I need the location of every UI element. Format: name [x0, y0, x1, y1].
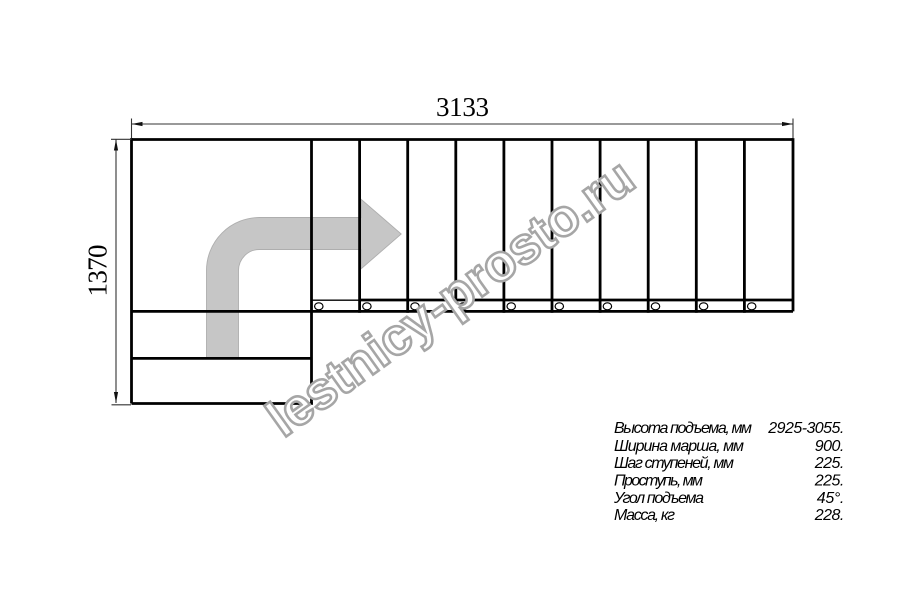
- svg-text:228.: 228.: [814, 507, 845, 524]
- svg-text:2925-3055.: 2925-3055.: [767, 420, 844, 437]
- svg-text:900.: 900.: [815, 438, 845, 455]
- svg-text:Угол подъема: Угол подъема: [613, 490, 704, 507]
- svg-text:225.: 225.: [814, 455, 845, 472]
- svg-text:Высота подъема, мм: Высота подъема, мм: [614, 420, 752, 437]
- svg-text:Проступь, мм: Проступь, мм: [614, 473, 703, 490]
- svg-text:45°.: 45°.: [817, 490, 845, 507]
- svg-text:Шаг ступеней, мм: Шаг ступеней, мм: [614, 455, 734, 472]
- svg-text:1370: 1370: [83, 245, 113, 297]
- svg-text:225.: 225.: [814, 473, 845, 490]
- svg-text:3133: 3133: [436, 92, 489, 122]
- svg-text:lestnicy-prosto.ru: lestnicy-prosto.ru: [257, 148, 646, 448]
- svg-text:Ширина марша, мм: Ширина марша, мм: [614, 438, 744, 455]
- svg-text:Масса, кг: Масса, кг: [614, 507, 675, 524]
